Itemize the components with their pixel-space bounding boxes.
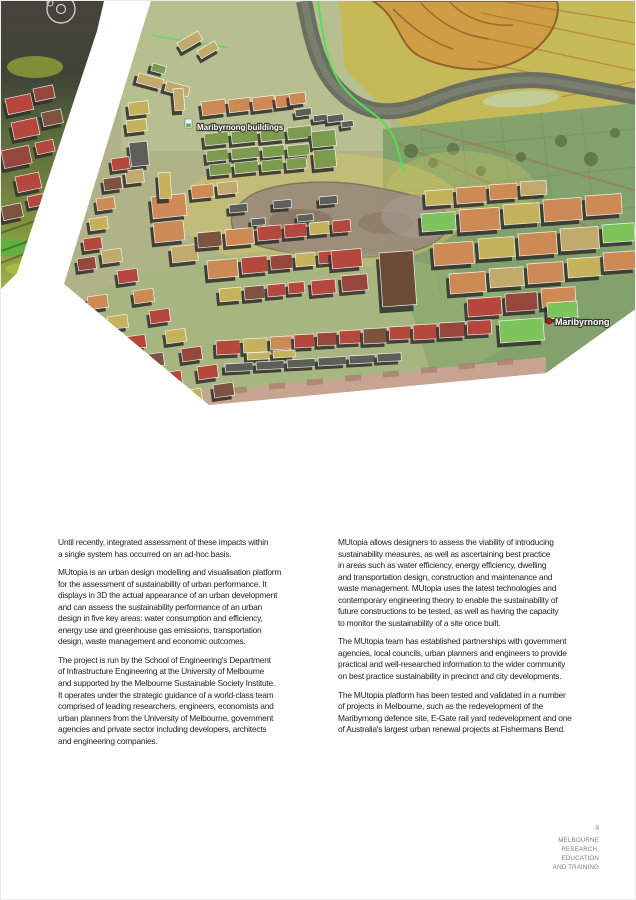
building-block xyxy=(254,225,283,245)
placemark-dot-icon xyxy=(546,318,552,324)
building-block xyxy=(194,364,219,384)
building-block xyxy=(417,212,456,237)
building-block xyxy=(563,257,602,283)
paragraph: The MUtopia platform has been tested and… xyxy=(338,690,610,736)
building-block xyxy=(150,220,186,248)
building-block xyxy=(464,320,492,339)
body-column-left: Until recently, integrated assessment of… xyxy=(58,537,330,754)
building-block xyxy=(283,157,308,174)
building-block xyxy=(346,355,376,368)
paragraph: The project is run by the School of Engi… xyxy=(58,655,330,747)
building-block xyxy=(122,334,147,354)
building-block xyxy=(499,202,540,229)
building-block xyxy=(98,248,123,268)
hero-visualization: Maribyrnong buildingsMaribyrnong xyxy=(1,1,636,413)
building-block xyxy=(328,248,363,273)
building-block xyxy=(463,297,502,322)
building-block xyxy=(238,256,269,278)
building-block xyxy=(198,99,227,120)
building-block xyxy=(360,328,388,348)
paragraph: MUtopia allows designers to assess the v… xyxy=(338,537,610,629)
building-block xyxy=(249,95,276,115)
building-block xyxy=(222,363,254,376)
building-block xyxy=(485,267,524,293)
building-block xyxy=(178,346,203,366)
building-block xyxy=(329,219,352,237)
building-block xyxy=(201,131,230,149)
building-block xyxy=(214,181,239,199)
building-block xyxy=(188,184,215,203)
building-block xyxy=(445,271,486,298)
building-block xyxy=(125,101,150,120)
sliver-glow xyxy=(7,56,63,78)
sliver-green-streak xyxy=(6,263,36,275)
building-block xyxy=(386,326,412,344)
building-block xyxy=(314,332,338,350)
building-block xyxy=(130,288,155,308)
building-block xyxy=(228,129,259,148)
building-block xyxy=(253,361,285,374)
building-block xyxy=(495,318,544,348)
paragraph: Until recently, integrated assessment of… xyxy=(58,537,330,560)
building-block xyxy=(206,163,233,180)
building-block xyxy=(281,223,308,242)
building-block xyxy=(93,196,116,215)
building-block xyxy=(216,287,243,306)
building-block xyxy=(316,195,338,208)
building-block xyxy=(226,203,248,216)
building-block xyxy=(310,149,337,174)
building-block xyxy=(455,207,500,236)
building-block xyxy=(241,285,266,304)
page-footer: 9 MELBOURNE RESEARCH, EDUCATION AND TRAI… xyxy=(553,825,599,873)
building-block xyxy=(108,156,131,175)
building-block xyxy=(104,314,129,334)
building-block xyxy=(225,97,252,117)
building-block xyxy=(556,226,599,255)
building-block xyxy=(336,330,362,348)
hero-main-image: Maribyrnong buildingsMaribyrnong xyxy=(1,1,636,411)
building-block xyxy=(375,251,417,314)
building-block xyxy=(306,221,331,239)
building-block xyxy=(100,176,123,195)
building-block xyxy=(258,159,285,176)
building-block xyxy=(146,308,171,328)
building-block xyxy=(422,189,455,210)
building-block xyxy=(213,340,241,359)
buildings-layer-icon xyxy=(185,119,192,128)
building-block xyxy=(84,294,109,314)
building-block xyxy=(231,160,260,177)
building-block xyxy=(210,382,235,402)
building-block xyxy=(168,244,199,267)
building-block xyxy=(74,256,97,275)
building-block xyxy=(194,231,223,252)
building-block xyxy=(453,186,488,208)
map-label-text: Maribyrnong buildings xyxy=(197,123,284,132)
building-block xyxy=(581,193,622,220)
building-block xyxy=(338,274,369,296)
building-block xyxy=(374,353,402,366)
building-block xyxy=(292,252,317,271)
building-block xyxy=(178,388,203,408)
building-block xyxy=(284,359,316,372)
building-block xyxy=(267,254,294,274)
map-label: Maribyrnong xyxy=(546,317,610,327)
footer-brand: MELBOURNE RESEARCH, EDUCATION AND TRAINI… xyxy=(553,837,599,873)
building-block xyxy=(158,370,183,390)
paragraph: MUtopia is an urban design modelling and… xyxy=(58,567,330,648)
map-label-text: Maribyrnong xyxy=(555,317,610,327)
building-block xyxy=(114,268,139,288)
building-block xyxy=(86,216,109,235)
building-block xyxy=(436,322,466,342)
building-block xyxy=(315,357,347,370)
building-block xyxy=(429,241,474,270)
building-block xyxy=(599,223,636,248)
building-block xyxy=(80,236,103,255)
building-block xyxy=(600,251,636,276)
building-block xyxy=(539,197,582,226)
body-column-right: MUtopia allows designers to assess the v… xyxy=(338,537,610,743)
building-block xyxy=(486,183,519,204)
document-page: Maribyrnong buildingsMaribyrnong Until r… xyxy=(0,0,636,900)
building-block xyxy=(123,119,148,137)
building-block xyxy=(284,125,313,143)
building-block xyxy=(204,258,239,283)
building-block xyxy=(474,236,515,263)
building-block xyxy=(410,324,438,344)
paragraph: The MUtopia team has established partner… xyxy=(338,636,610,682)
building-block xyxy=(514,231,557,260)
building-block xyxy=(140,352,165,372)
building-block xyxy=(270,199,292,212)
building-block xyxy=(523,261,564,288)
building-block xyxy=(162,328,187,348)
building-block xyxy=(517,180,548,200)
building-block xyxy=(222,228,255,251)
building-block xyxy=(502,292,539,317)
page-number: 9 xyxy=(553,825,599,832)
building-block xyxy=(291,334,315,352)
building-block xyxy=(308,279,337,299)
building-block xyxy=(264,283,287,301)
